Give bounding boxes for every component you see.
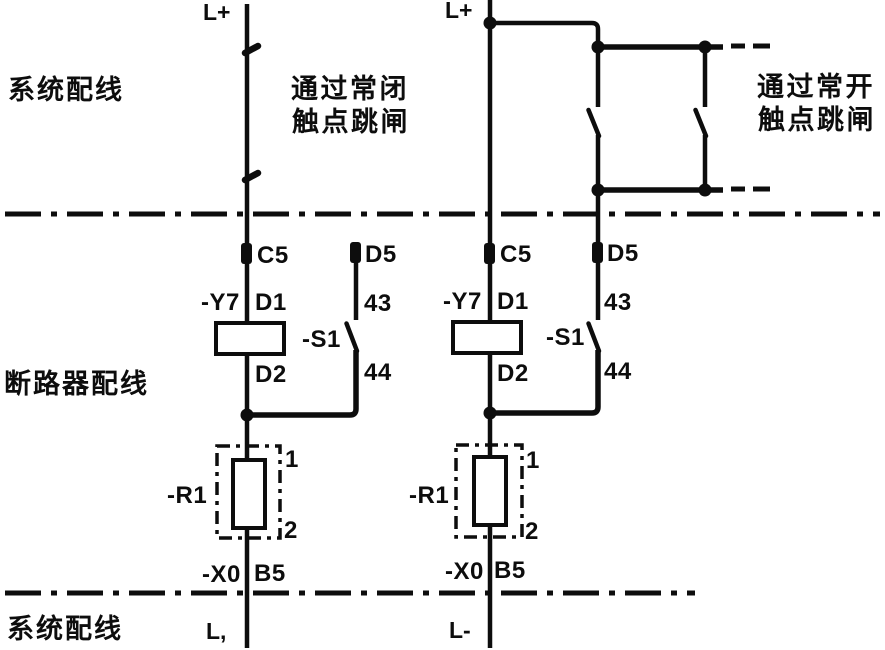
right-terminal-d5-block [592,242,603,263]
right-terminal-d5-label: D5 [607,240,639,267]
right-terminal-b5-label: B5 [494,557,526,584]
right-resistor-pin1-label: 1 [526,447,540,474]
label-system-wiring-top: 系统配线 [8,74,124,105]
right-coil-ref-label: -Y7 [443,288,482,315]
left-s1-contact-blade [347,324,358,352]
right-contact-44-label: 44 [604,358,632,385]
right-resistor-pin2-label: 2 [525,518,539,545]
left-terminal-b5-label: B5 [254,560,286,587]
right-circuit-labels: L+ C5 D5 -Y7 D1 D2 -S1 43 44 -R1 1 2 -X0… [409,0,639,643]
right-resistor-r1-symbol [474,457,506,525]
right-contact-43-label: 43 [604,289,632,316]
right-switch-ref-label: -S1 [546,324,585,351]
left-terminal-d5-label: D5 [365,241,397,268]
left-supply-bottom-label: L, [206,618,226,644]
left-contact-43-label: 43 [364,290,392,317]
right-coil-y7-symbol [453,322,521,353]
left-contact-44-label: 44 [364,359,392,386]
right-supply-bottom-label: L- [449,617,471,643]
right-circuit [453,0,770,648]
scanned-wiring-diagram: 系统配线 断路器配线 系统配线 通过常闭 触点跳闸 通过常开 触点跳闸 L+ C… [0,0,885,650]
left-supply-top-label: L+ [203,0,230,25]
left-terminal-c5-label: C5 [257,242,289,269]
left-coil-ref-label: -Y7 [201,289,240,316]
wiring-diagram-canvas: 系统配线 断路器配线 系统配线 通过常闭 触点跳闸 通过常开 触点跳闸 L+ C… [0,0,885,650]
right-coil-d1-label: D1 [497,288,529,315]
right-terminal-c5-block [484,243,495,264]
caption-nc-line2: 触点跳闸 [292,107,410,137]
label-system-wiring-bottom: 系统配线 [7,613,123,644]
left-terminal-c5-block [241,243,252,264]
left-coil-d2-label: D2 [255,361,287,388]
left-coil-d1-label: D1 [255,289,287,316]
left-switch-ref-label: -S1 [302,326,341,353]
caption-nc-line1: 通过常闭 [291,74,409,104]
caption-no-line1: 通过常开 [757,72,875,102]
branch-bottom-right-dot [699,184,712,197]
no-contact-1-blade [589,110,600,136]
left-resistor-pin2-label: 2 [284,517,298,544]
caption-no-line2: 触点跳闸 [758,105,876,135]
left-resistor-ref-label: -R1 [167,482,207,509]
no-contact-2-blade [696,110,707,136]
left-terminal-x0-label: -X0 [202,561,241,588]
right-supply-top-label: L+ [445,0,472,23]
left-coil-y7-symbol [216,323,284,354]
zone-labels: 系统配线 断路器配线 系统配线 [4,74,149,644]
right-coil-d2-label: D2 [497,360,529,387]
left-resistor-r1-symbol [233,460,265,528]
left-terminal-d5-block [350,242,361,263]
right-branch-link-wire [490,23,598,47]
right-terminal-c5-label: C5 [500,241,532,268]
right-resistor-ref-label: -R1 [409,482,449,509]
caption-nc-trip: 通过常闭 触点跳闸 [291,74,410,137]
right-s1-contact-blade [589,324,600,352]
right-terminal-x0-label: -X0 [445,558,484,585]
left-resistor-pin1-label: 1 [285,446,299,473]
caption-no-trip: 通过常开 触点跳闸 [757,72,876,135]
label-breaker-wiring: 断路器配线 [4,368,149,399]
